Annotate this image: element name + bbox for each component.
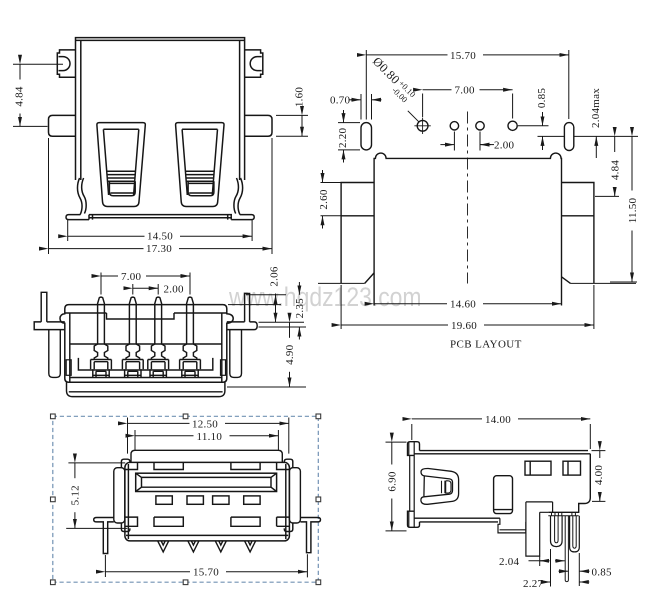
- svg-text:2.04: 2.04: [499, 556, 520, 568]
- svg-text:14.50: 14.50: [147, 230, 173, 242]
- svg-text:17.30: 17.30: [146, 243, 172, 255]
- svg-text:2.00: 2.00: [164, 283, 185, 295]
- svg-text:4.00: 4.00: [593, 465, 605, 486]
- svg-text:11.10: 11.10: [197, 431, 223, 443]
- svg-text:PCB LAYOUT: PCB LAYOUT: [450, 339, 522, 351]
- svg-text:15.70: 15.70: [193, 567, 219, 579]
- svg-text:5.12: 5.12: [70, 485, 82, 505]
- svg-text:2.60: 2.60: [318, 189, 330, 210]
- svg-text:1.60: 1.60: [294, 87, 306, 108]
- svg-text:2.06: 2.06: [269, 266, 281, 287]
- svg-text:2.27: 2.27: [523, 578, 544, 590]
- svg-text:4.84: 4.84: [14, 86, 26, 107]
- svg-text:www.hqdz123.com: www.hqdz123.com: [228, 282, 421, 312]
- svg-text:11.50: 11.50: [627, 197, 639, 223]
- svg-text:14.60: 14.60: [450, 299, 476, 311]
- svg-text:6.90: 6.90: [387, 471, 399, 492]
- svg-text:2.20: 2.20: [337, 128, 349, 149]
- svg-text:2.04max: 2.04max: [590, 88, 602, 128]
- svg-text:7.00: 7.00: [121, 271, 142, 283]
- svg-text:4.84: 4.84: [610, 160, 622, 181]
- svg-text:2.00: 2.00: [494, 140, 515, 152]
- svg-text:2.35: 2.35: [294, 298, 306, 319]
- svg-text:12.50: 12.50: [192, 419, 218, 431]
- svg-text:0.85: 0.85: [592, 566, 613, 578]
- svg-text:4.90: 4.90: [284, 344, 296, 365]
- svg-text:14.00: 14.00: [485, 414, 511, 426]
- svg-text:15.70: 15.70: [450, 50, 476, 62]
- svg-text:7.00: 7.00: [455, 85, 476, 97]
- svg-text:19.60: 19.60: [451, 320, 477, 332]
- svg-text:0.70: 0.70: [330, 95, 351, 107]
- svg-text:0.85: 0.85: [536, 88, 548, 109]
